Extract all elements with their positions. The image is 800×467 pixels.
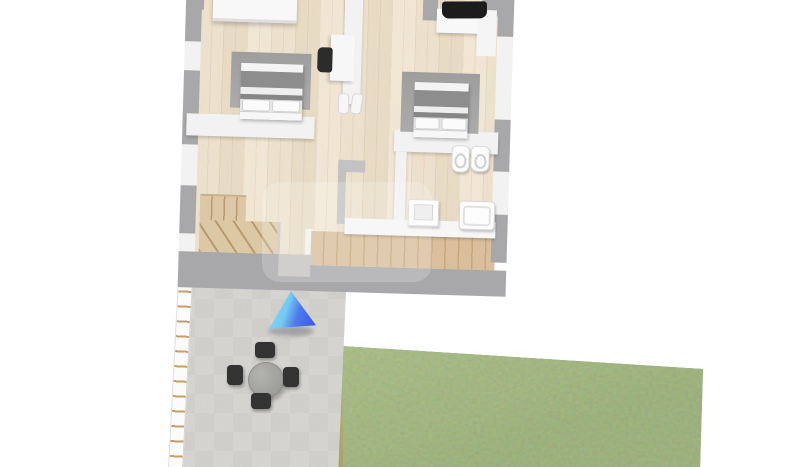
monitor bbox=[442, 1, 487, 18]
patio-chair-west bbox=[227, 365, 243, 385]
bed-duvet bbox=[241, 71, 303, 89]
patio bbox=[176, 280, 346, 467]
bed-left bbox=[240, 63, 304, 121]
hall-desk bbox=[330, 35, 355, 82]
patio-chair-east bbox=[283, 367, 299, 387]
pillow bbox=[272, 100, 300, 113]
lawn bbox=[337, 345, 703, 467]
staircase-flight bbox=[200, 194, 247, 223]
watermark-overlay bbox=[262, 182, 432, 282]
lawn-shading bbox=[337, 345, 703, 467]
bathtub bbox=[458, 200, 495, 230]
slippers bbox=[338, 93, 363, 115]
top-left-corner-wall bbox=[186, 0, 205, 10]
bed-right bbox=[413, 82, 469, 139]
patio-chair-south bbox=[251, 393, 271, 409]
floor-plan-render bbox=[0, 0, 800, 467]
bed-headboard bbox=[413, 129, 467, 138]
left-wall-segment bbox=[179, 185, 196, 233]
pillow bbox=[415, 117, 440, 129]
bidet bbox=[470, 146, 490, 173]
hall-wall-stub bbox=[338, 160, 365, 173]
pillow bbox=[441, 118, 466, 130]
toilet bbox=[451, 145, 470, 173]
patio-chair-north bbox=[255, 342, 275, 358]
slipper bbox=[349, 93, 363, 116]
slipper bbox=[338, 93, 350, 114]
pillow bbox=[242, 99, 270, 112]
hall-desk-chair bbox=[317, 47, 333, 72]
wardrobe bbox=[213, 0, 298, 23]
bed-duvet bbox=[414, 90, 468, 108]
